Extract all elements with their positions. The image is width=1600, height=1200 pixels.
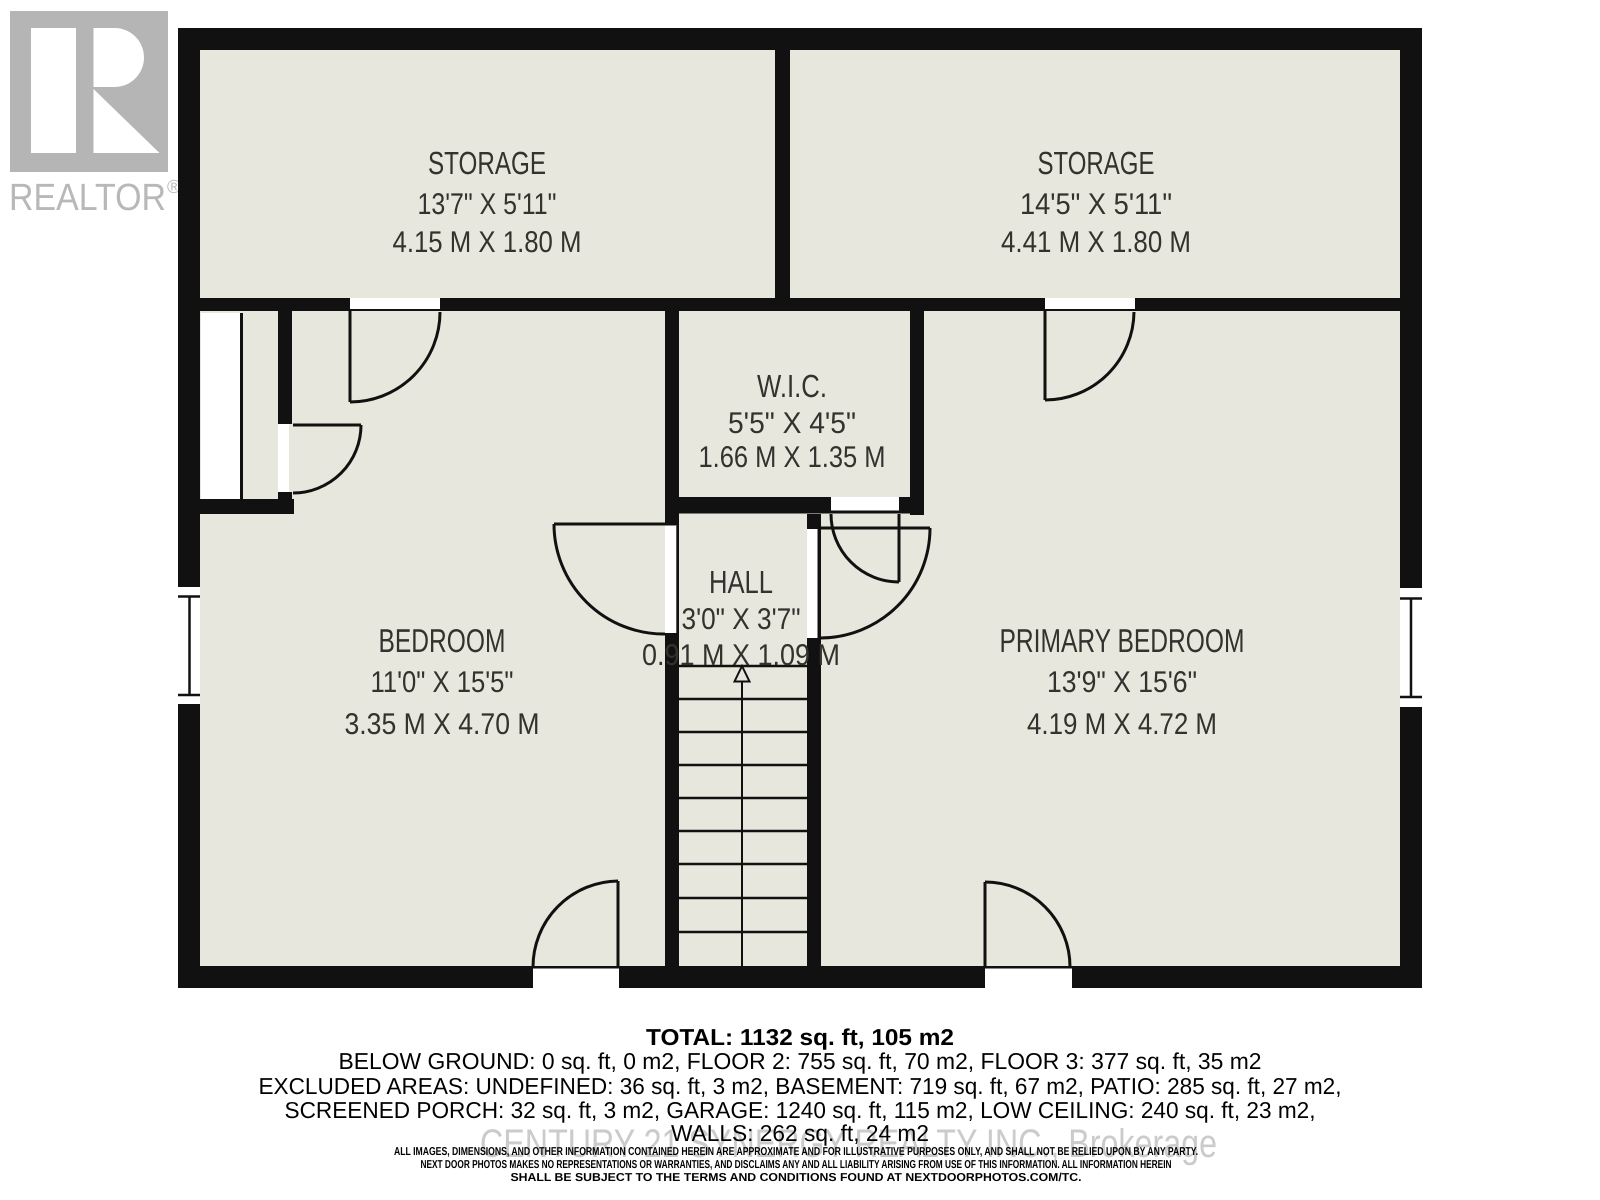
- svg-text:4.41 M X 1.80 M: 4.41 M X 1.80 M: [1001, 226, 1191, 259]
- svg-text:SHALL BE SUBJECT TO THE TERMS: SHALL BE SUBJECT TO THE TERMS AND CONDIT…: [511, 1172, 1082, 1184]
- svg-text:0.91 M X 1.09 M: 0.91 M X 1.09 M: [642, 639, 840, 672]
- svg-text:3.35 M X 4.70 M: 3.35 M X 4.70 M: [345, 708, 540, 741]
- svg-text:EXCLUDED AREAS: UNDEFINED: 36: EXCLUDED AREAS: UNDEFINED: 36 sq. ft, 3 …: [259, 1073, 1342, 1099]
- svg-text:STORAGE: STORAGE: [1038, 145, 1155, 181]
- svg-text:PRIMARY BEDROOM: PRIMARY BEDROOM: [1000, 622, 1245, 659]
- svg-text:HALL: HALL: [709, 564, 773, 600]
- svg-text:3'0" X 3'7": 3'0" X 3'7": [682, 603, 801, 636]
- svg-text:13'9" X 15'6": 13'9" X 15'6": [1047, 666, 1197, 699]
- svg-text:13'7" X 5'11": 13'7" X 5'11": [418, 188, 557, 221]
- svg-text:WALLS: 262 sq. ft, 24 m2: WALLS: 262 sq. ft, 24 m2: [671, 1120, 929, 1146]
- svg-text:14'5" X 5'11": 14'5" X 5'11": [1020, 188, 1172, 221]
- svg-text:TOTAL: 1132 sq. ft, 105 m2: TOTAL: 1132 sq. ft, 105 m2: [646, 1024, 954, 1050]
- svg-text:11'0" X 15'5": 11'0" X 15'5": [371, 666, 514, 699]
- svg-text:REALTOR: REALTOR: [9, 177, 166, 219]
- svg-text:BELOW GROUND: 0 sq. ft, 0 m2,: BELOW GROUND: 0 sq. ft, 0 m2, FLOOR 2: 7…: [339, 1048, 1262, 1074]
- svg-text:NEXT DOOR PHOTOS MAKES NO REPR: NEXT DOOR PHOTOS MAKES NO REPRESENTATION…: [421, 1159, 1172, 1171]
- svg-text:W.I.C.: W.I.C.: [757, 368, 827, 404]
- svg-text:STORAGE: STORAGE: [428, 145, 546, 181]
- svg-text:4.15 M X 1.80 M: 4.15 M X 1.80 M: [393, 226, 582, 259]
- svg-text:1.66 M X 1.35 M: 1.66 M X 1.35 M: [699, 441, 886, 474]
- svg-text:BEDROOM: BEDROOM: [379, 622, 506, 659]
- svg-text:ALL IMAGES, DIMENSIONS, AND OT: ALL IMAGES, DIMENSIONS, AND OTHER INFORM…: [394, 1146, 1198, 1158]
- svg-text:5'5" X 4'5": 5'5" X 4'5": [728, 407, 856, 440]
- svg-text:4.19 M X 4.72 M: 4.19 M X 4.72 M: [1027, 708, 1217, 741]
